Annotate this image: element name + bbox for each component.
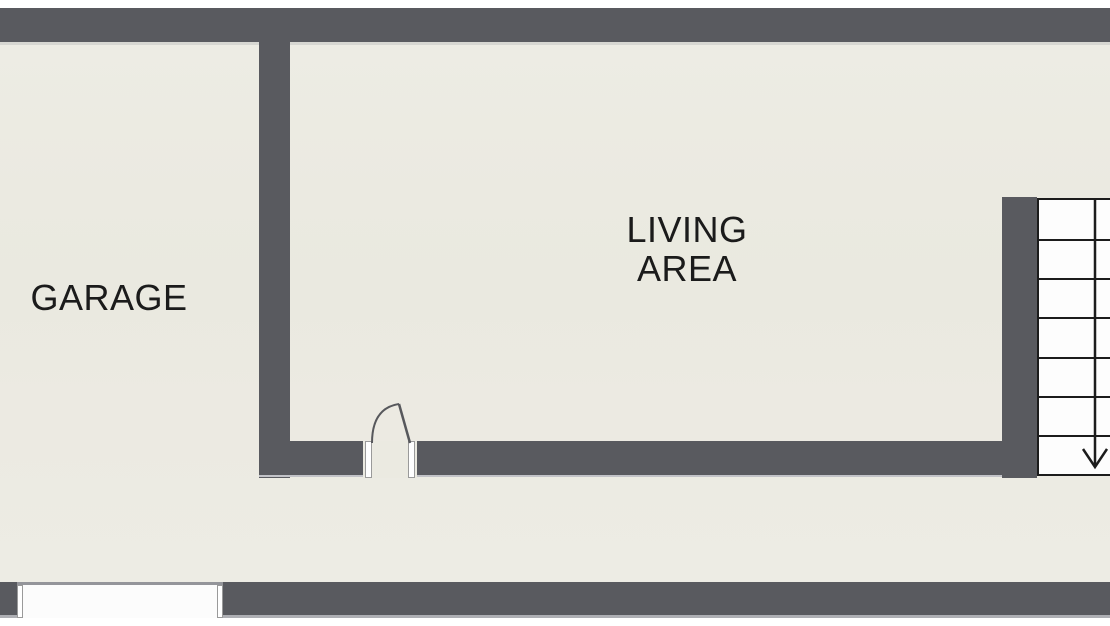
garage-door-opening: [17, 582, 223, 618]
garage-door-jamb-right: [217, 585, 223, 618]
wall-garage-living-separator: [259, 42, 290, 478]
garage-door-jamb-left: [17, 585, 23, 618]
exterior-wall-top: [0, 8, 1110, 45]
room-label-living-line1: LIVING: [626, 210, 747, 249]
interior-door-jamb-left: [365, 441, 372, 478]
stairs-down-arrow-icon: [1039, 200, 1108, 474]
wall-stair-side: [1002, 197, 1037, 478]
floor-plan: GARAGE LIVING AREA: [0, 0, 1110, 626]
room-label-living-line2: AREA: [626, 249, 747, 288]
room-label-garage: GARAGE: [30, 277, 187, 319]
interior-door-jamb-right: [408, 441, 415, 478]
door-swing-icon: [358, 394, 422, 444]
room-label-living-area: LIVING AREA: [626, 210, 747, 288]
staircase: [1037, 198, 1110, 476]
exterior-wall-bottom-right: [223, 582, 1110, 618]
exterior-wall-bottom-left: [0, 582, 17, 618]
